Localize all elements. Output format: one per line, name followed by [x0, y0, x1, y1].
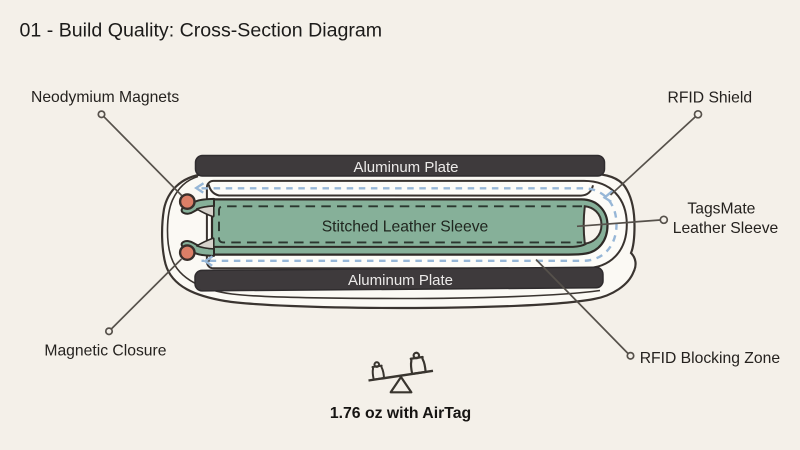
svg-text:Magnetic Closure: Magnetic Closure: [44, 342, 166, 359]
svg-text:Aluminum Plate: Aluminum Plate: [348, 272, 453, 289]
svg-text:1.76 oz with AirTag: 1.76 oz with AirTag: [330, 405, 471, 422]
svg-text:01 - Build Quality: Cross-Sect: 01 - Build Quality: Cross-Section Diagra…: [20, 20, 383, 42]
svg-text:RFID Blocking Zone: RFID Blocking Zone: [640, 350, 781, 367]
svg-text:TagsMate: TagsMate: [687, 201, 755, 218]
svg-text:RFID Shield: RFID Shield: [668, 90, 753, 107]
svg-text:Stitched Leather Sleeve: Stitched Leather Sleeve: [322, 219, 489, 236]
svg-text:Aluminum Plate: Aluminum Plate: [353, 159, 458, 176]
svg-text:Leather Sleeve: Leather Sleeve: [673, 220, 779, 237]
svg-text:Neodymium Magnets: Neodymium Magnets: [31, 89, 179, 106]
